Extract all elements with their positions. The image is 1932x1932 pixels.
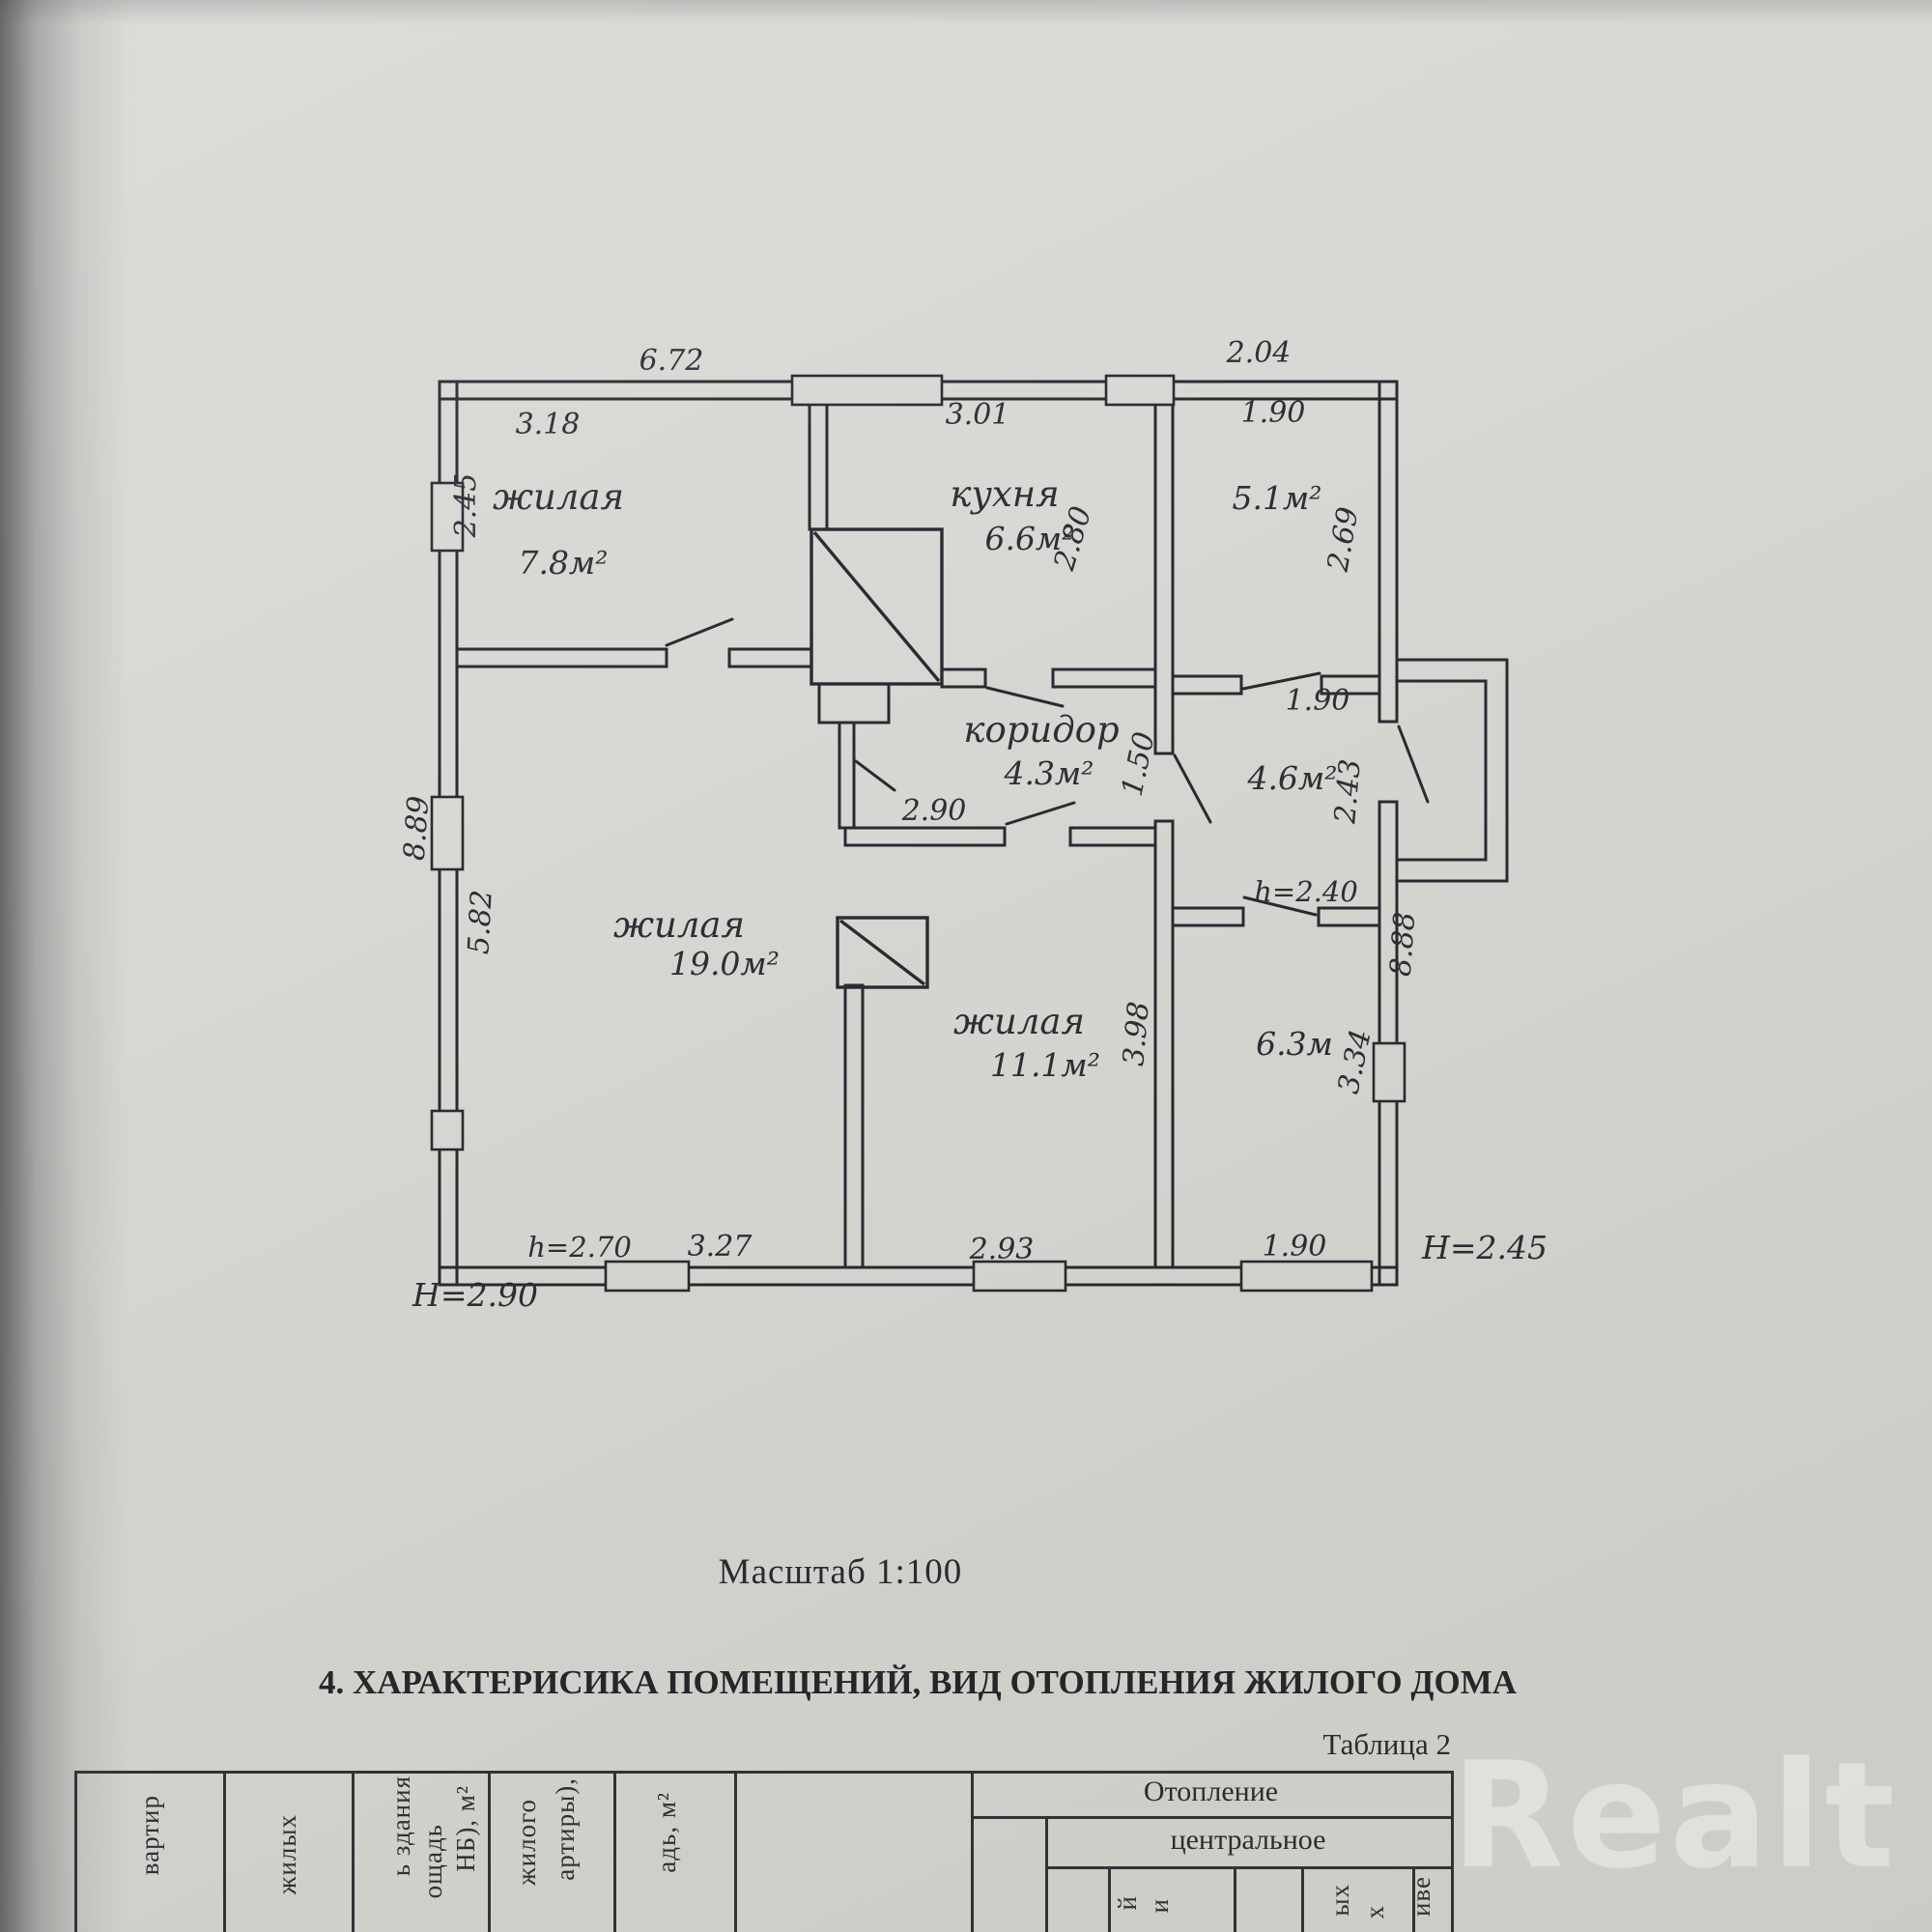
dim-room111-width: 2.93 bbox=[969, 1233, 1035, 1266]
corridor-name: коридор bbox=[963, 709, 1119, 751]
table-fragment-1: й bbox=[1113, 1895, 1143, 1910]
section-title: 4. ХАРАКТЕРИСИКА ПОМЕЩЕНИЙ, ВИД ОТОПЛЕНИ… bbox=[290, 1663, 1546, 1702]
dim-room78-width: 3.18 bbox=[516, 408, 581, 441]
table-col-house-line1: жилого bbox=[512, 1799, 542, 1886]
dim-h270: h=2.70 bbox=[527, 1231, 632, 1264]
room78-name: жилая bbox=[493, 476, 624, 518]
realt-watermark-logo: Realt bbox=[1451, 1735, 1897, 1896]
dim-room51-width: 1.90 bbox=[1241, 396, 1306, 430]
table-fragment-2: и bbox=[1145, 1898, 1175, 1913]
kitchen-area: 6.6м² bbox=[984, 520, 1074, 557]
photographed-document-page: 6.72 2.04 3.18 2.45 3.01 2.80 1.90 2.69 … bbox=[0, 0, 1932, 1932]
table-header-central: центральное bbox=[1045, 1824, 1451, 1857]
room190-area: 19.0м² bbox=[669, 945, 780, 982]
dim-room63-height: 3.34 bbox=[1332, 1027, 1378, 1097]
room46-area: 4.6м² bbox=[1246, 759, 1337, 797]
room78-area: 7.8м² bbox=[518, 544, 608, 582]
dim-corridor-height: 1.50 bbox=[1116, 729, 1162, 800]
dim-room63-width: 1.90 bbox=[1263, 1230, 1327, 1264]
table-header-heating: Отопление bbox=[971, 1776, 1451, 1808]
dim-corridor-width: 2.90 bbox=[901, 794, 967, 828]
table-col-building-line1: ь здания bbox=[386, 1776, 416, 1876]
dim-room111-height: 3.98 bbox=[1117, 1000, 1156, 1067]
table-col-flats: вартир bbox=[135, 1795, 165, 1875]
dim-height-annex: Н=2.45 bbox=[1421, 1229, 1548, 1266]
kitchen-name: кухня bbox=[950, 473, 1059, 515]
dim-h240: h=2.40 bbox=[1254, 875, 1358, 908]
corridor-area: 4.3м² bbox=[1003, 754, 1094, 792]
room-labels: жилая 7.8м² кухня 6.6м² 5.1м² коридор 4.… bbox=[493, 473, 1338, 1084]
table-col-building-line2: ощадь bbox=[418, 1824, 448, 1898]
table-fragment-3: ых bbox=[1325, 1884, 1355, 1917]
dim-left-total: 8.89 bbox=[398, 795, 437, 862]
room51-area: 5.1м² bbox=[1232, 479, 1321, 517]
room190-name: жилая bbox=[613, 904, 745, 946]
stove-icon bbox=[811, 529, 942, 684]
stove-icon bbox=[838, 918, 927, 987]
table-number-label: Таблица 2 bbox=[1159, 1727, 1451, 1762]
scale-caption: Масштаб 1:100 bbox=[580, 1551, 1101, 1593]
table-col-living: жилых bbox=[272, 1814, 302, 1894]
table-fragment-4: х bbox=[1360, 1905, 1390, 1919]
room63-area: 6.3м bbox=[1256, 1025, 1333, 1063]
room111-name: жилая bbox=[953, 1001, 1085, 1042]
dim-top-annex: 2.04 bbox=[1226, 336, 1292, 370]
page-edge-shadow bbox=[0, 0, 130, 1932]
dim-room190-height: 5.82 bbox=[462, 889, 498, 955]
page-top-shadow bbox=[0, 0, 1932, 25]
dim-top-main: 6.72 bbox=[639, 344, 704, 378]
dim-height-main: Н=2.90 bbox=[412, 1276, 538, 1314]
dim-room51-door: 1.90 bbox=[1286, 684, 1350, 718]
room111-area: 11.1м² bbox=[990, 1046, 1100, 1084]
porch-outline bbox=[1397, 660, 1507, 881]
table-col-house-line2: артиры), bbox=[551, 1777, 581, 1881]
dim-right-total: 8.88 bbox=[1384, 911, 1423, 978]
floor-plan: 6.72 2.04 3.18 2.45 3.01 2.80 1.90 2.69 … bbox=[367, 319, 1584, 1352]
table-col-area: адь, м² bbox=[652, 1792, 682, 1873]
table-col-building-line3: НБ), м² bbox=[451, 1785, 481, 1872]
table-fragment-5: иве bbox=[1406, 1876, 1436, 1917]
dim-room78-height: 2.45 bbox=[449, 473, 483, 539]
dim-kitchen-width: 3.01 bbox=[946, 398, 1010, 432]
dim-room51-height: 2.69 bbox=[1321, 504, 1365, 575]
dim-room190-width: 3.27 bbox=[688, 1230, 753, 1264]
